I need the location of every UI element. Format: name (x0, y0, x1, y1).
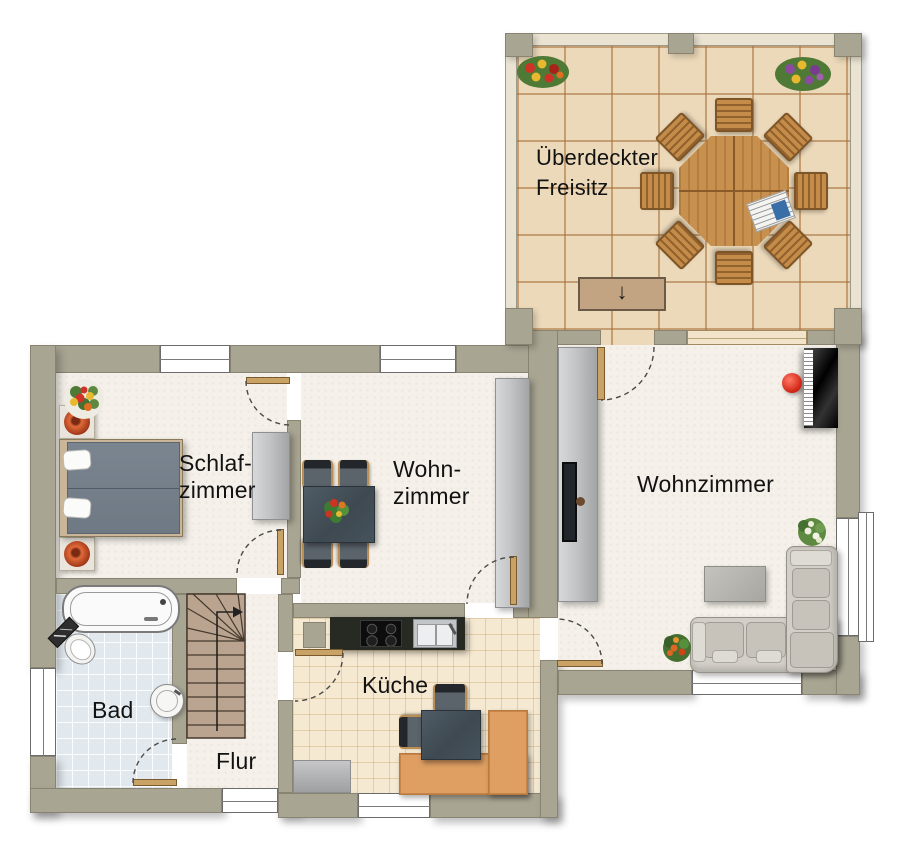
pillow (62, 497, 91, 519)
floor-plan: ↓ (0, 0, 900, 845)
entrance-door-opening (222, 788, 278, 813)
sink-basin (417, 624, 436, 646)
stove (360, 620, 402, 647)
sofa-front-pad (712, 650, 738, 663)
bathtub (62, 585, 180, 633)
plant-pot (64, 409, 90, 435)
steps-down-arrow: ↓ (617, 279, 628, 304)
wall (558, 670, 692, 695)
dining-chair (338, 460, 369, 488)
dining-chair (338, 540, 369, 568)
sofa-front-pad (756, 650, 782, 663)
room-label-wohnzimmer: Wohnzimmer (637, 471, 774, 498)
terrace-pillar (834, 308, 862, 345)
room-label-freisitz: Überdeckter Freisitz (536, 143, 658, 203)
piano-keyboard (804, 350, 813, 426)
coffee-table (704, 566, 766, 602)
dining-chair (302, 540, 333, 568)
wall (836, 636, 860, 695)
room-label-wohnzimmer-klein: Wohn- zimmer (393, 456, 470, 510)
room-label-bad: Bad (92, 697, 134, 724)
window (30, 668, 56, 756)
wall (30, 345, 56, 668)
terrace-pillar (668, 33, 694, 54)
terrace-pillar (505, 308, 533, 345)
window (836, 518, 860, 636)
terrace-window (687, 330, 807, 345)
room-label-schlafzimmer: Schlaf- zimmer (179, 450, 256, 504)
bed-duvet-split (67, 488, 180, 489)
window (380, 345, 456, 373)
wall (430, 793, 558, 818)
window (160, 345, 230, 373)
wall (278, 700, 293, 793)
newspaper-photo (771, 200, 791, 221)
door-bathroom (133, 779, 177, 786)
dining-chair (302, 460, 333, 488)
kitchen-chair (433, 684, 467, 712)
room-label-kueche: Küche (362, 672, 428, 699)
wall (654, 330, 687, 345)
dining-table (303, 486, 375, 543)
door-smallliving-kitchen (510, 556, 517, 605)
door-bedroom-top (246, 377, 290, 384)
sofa-cushion (792, 568, 830, 598)
wall (30, 788, 222, 813)
sofa-cushion (792, 600, 830, 630)
kitchen-rug (293, 760, 351, 793)
door-kitchen-living (557, 660, 603, 667)
terrace-steps: ↓ (578, 277, 666, 311)
kitchen-table (421, 710, 481, 760)
wall (230, 345, 380, 373)
washbasin-bowl (156, 690, 178, 712)
piano-stool (782, 373, 802, 393)
window (358, 793, 430, 818)
door-terrace-living (597, 347, 605, 400)
garden-chair (794, 172, 828, 210)
wall (528, 330, 558, 618)
kitchen-counter (330, 617, 465, 650)
pillow (62, 449, 91, 471)
terrace-wall-left (505, 33, 517, 345)
double-bed (59, 439, 183, 537)
sofa-end-pillow (790, 550, 832, 566)
tv (562, 462, 577, 542)
door-hall-kitchen (295, 649, 343, 656)
garden-chair (715, 251, 753, 285)
window-sill (858, 512, 874, 642)
wall (278, 594, 293, 652)
wall (540, 660, 558, 818)
wall (456, 345, 530, 373)
door-bedroom-hall (277, 529, 284, 575)
terrace-pillar (834, 33, 862, 57)
sofa-end-pillow (692, 622, 706, 662)
corner-bench-right (488, 710, 528, 795)
terrace-pillar (505, 33, 533, 57)
wardrobe (252, 432, 290, 520)
plant-pot (64, 541, 90, 567)
chimney (303, 622, 326, 648)
wall (278, 793, 358, 818)
sofa-corner-cushion (790, 632, 834, 668)
tv-knob (576, 497, 585, 506)
wall (281, 578, 300, 594)
room-label-flur: Flur (216, 748, 256, 775)
window (692, 670, 802, 695)
sink (413, 619, 457, 648)
garden-chair (715, 98, 753, 132)
bathtub-faucet (160, 599, 166, 605)
wall (293, 603, 465, 618)
washbasin (150, 684, 184, 718)
garden-table (679, 136, 789, 246)
terrace-wall-right (850, 33, 862, 345)
wall (836, 330, 860, 518)
bathtub-drain (144, 617, 158, 621)
bathtub-inner (70, 592, 172, 626)
